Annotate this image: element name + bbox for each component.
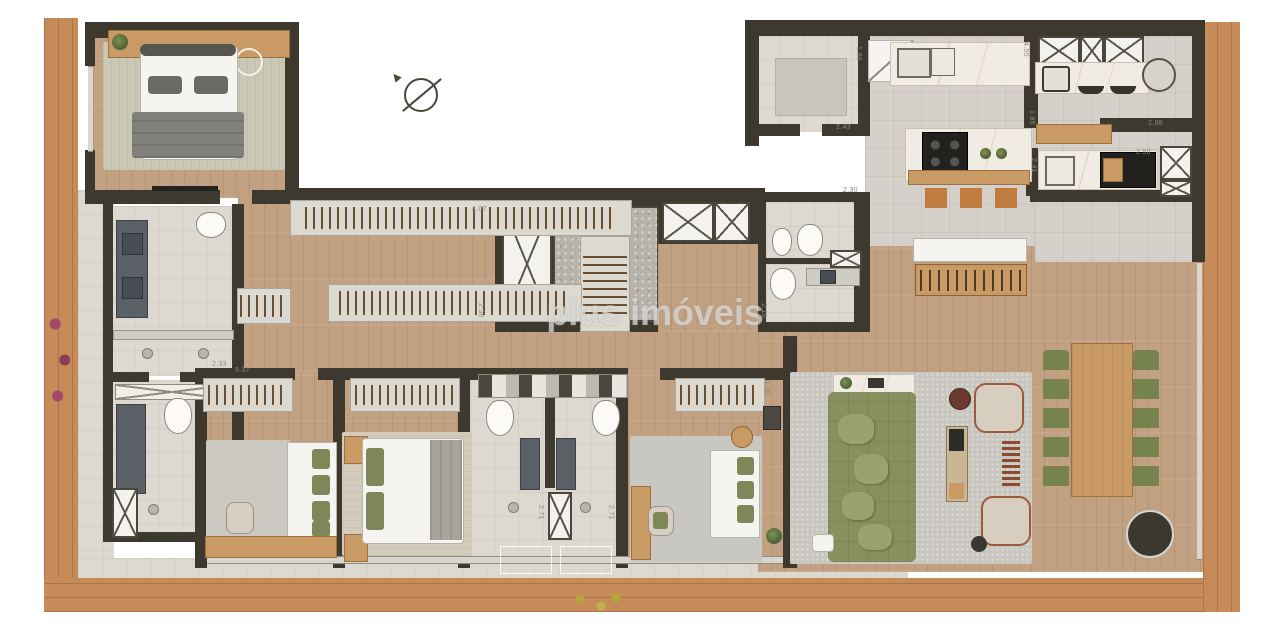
closet-rack-bottom — [328, 284, 582, 322]
plant-nightstand — [112, 34, 128, 50]
plant-bedroom4 — [766, 528, 782, 544]
vanity-master — [116, 220, 148, 318]
north-arrow-icon — [404, 78, 438, 112]
dimension-label: 2.43 — [836, 124, 851, 131]
toilet-master — [196, 212, 226, 238]
shower-glass-twin — [548, 492, 572, 540]
armchair — [981, 496, 1031, 546]
pillow — [194, 76, 228, 94]
dimension-label: 1.85 — [1028, 110, 1035, 125]
pantry-inner — [775, 58, 847, 116]
shower-head-icon — [148, 504, 159, 515]
dimension-label: 2.30 — [843, 187, 858, 194]
sofa-green — [828, 392, 916, 562]
wall — [616, 368, 628, 568]
service-bench — [1036, 124, 1112, 144]
vanity-bathA — [520, 438, 540, 490]
hedge-flowers-yellow — [565, 588, 625, 616]
hedge-bottom — [483, 582, 908, 628]
floor-plan: plus imóveis 4.072.362.339.372.302.101.8… — [0, 0, 1280, 640]
dining-chairs-left — [1043, 350, 1069, 492]
washer-underc — [1078, 86, 1104, 94]
wall — [1192, 20, 1205, 262]
elevator-icon — [714, 202, 750, 242]
shoe-rack — [237, 288, 291, 324]
bidet — [772, 228, 792, 256]
vanity-counter2 — [113, 330, 234, 340]
dimension-label: 2.71 — [537, 505, 544, 520]
round-coffee-table — [1126, 510, 1174, 558]
shower-head-icon — [198, 348, 209, 359]
shower-glass — [112, 488, 138, 538]
dimension-label: 2.10 — [760, 303, 767, 318]
tall-cabinet — [763, 406, 781, 430]
wall — [103, 204, 113, 386]
lavabo-sink — [820, 270, 836, 284]
vanity-bathB — [556, 438, 576, 490]
toilet-wc1 — [797, 224, 823, 256]
closet-rack-top — [290, 200, 632, 236]
headboard-cushion — [140, 44, 236, 56]
daybed-bedroom2 — [287, 442, 337, 544]
wall — [545, 396, 555, 488]
island-stools — [925, 188, 1027, 208]
bed-throw — [430, 440, 462, 540]
slatted-bench — [1002, 438, 1020, 486]
toilet-lavabo — [770, 268, 796, 300]
bar-cabinet — [946, 426, 968, 502]
window-master — [88, 66, 93, 152]
dimension-label: 4.30 — [763, 380, 770, 395]
kitchen-sink2 — [931, 48, 955, 76]
island-plant — [980, 148, 991, 159]
pillow-green — [366, 492, 384, 530]
cutting-board — [1103, 158, 1123, 182]
elevator-icon — [662, 202, 714, 242]
round-side-table — [731, 426, 753, 448]
daybed-bedroom4 — [710, 450, 760, 538]
desk-bedroom2 — [205, 536, 337, 558]
toilet-bathB — [592, 400, 620, 436]
watermark: plus imóveis — [546, 292, 763, 334]
dining-chairs-right — [1133, 350, 1159, 492]
shower-head-icon — [508, 502, 519, 513]
dimension-label: 2.41 — [1030, 158, 1037, 173]
bed-blanket — [132, 112, 244, 158]
toilet-bathA — [486, 400, 514, 436]
dimension-label: 2.33 — [212, 361, 227, 368]
toilet-wc — [164, 398, 192, 434]
service-shaft-icon — [1160, 180, 1192, 197]
dimension-label: 2.88 — [1148, 120, 1163, 127]
service-sink — [1045, 156, 1075, 186]
cabinet-wc — [116, 404, 146, 494]
island-wood-base — [908, 170, 1030, 185]
wall — [85, 22, 95, 66]
dimension-label: 2.36 — [477, 303, 484, 318]
bedroom2-closet-rack — [203, 378, 293, 412]
desk-chair-bedroom4 — [648, 506, 674, 536]
desk-chair-bedroom2 — [226, 502, 254, 534]
dimension-label: 1.88 — [855, 46, 862, 61]
wall — [85, 190, 220, 204]
dimension-label: 9.37 — [235, 367, 250, 374]
round-table-red — [949, 388, 971, 410]
deck-right — [1203, 22, 1240, 612]
ceiling-light-icon — [235, 48, 263, 76]
wine-rack — [915, 264, 1027, 296]
dimension-label: 4.07 — [472, 206, 487, 213]
balcony-table-outline — [500, 546, 552, 574]
shower-head-icon — [580, 502, 591, 513]
balcony-table-outline — [560, 546, 612, 574]
tv-panel — [152, 186, 218, 191]
dining-table — [1071, 343, 1133, 497]
dimension-label: 2.50 — [1136, 149, 1151, 156]
wall — [745, 124, 800, 136]
wall — [85, 150, 95, 204]
pillow — [148, 76, 182, 94]
side-table-dark — [971, 536, 987, 552]
console-plant — [840, 377, 852, 389]
wall — [745, 20, 1205, 36]
garden-flowers — [48, 300, 72, 420]
washer-underc — [1110, 86, 1136, 94]
laundry-sink — [1042, 66, 1070, 92]
shower-glass-wc1 — [830, 250, 862, 268]
window-living-right — [1197, 262, 1202, 560]
armchair — [974, 383, 1024, 433]
dimension-label: 2.71 — [607, 505, 614, 520]
side-table-white — [812, 534, 834, 552]
washing-machine — [1142, 58, 1176, 92]
kitchen-sink — [897, 48, 931, 78]
console-tray — [868, 378, 884, 388]
dimension-label: 4.50 — [1022, 42, 1029, 57]
bedroom3-closet-rack — [350, 378, 460, 412]
service-shaft-icon — [1160, 146, 1192, 180]
shower-head-icon — [142, 348, 153, 359]
bedroom4-closet-rack — [675, 378, 765, 412]
pillow-green — [366, 448, 384, 486]
island-plant — [996, 148, 1007, 159]
buffet-top — [913, 238, 1027, 262]
wardrobe-shelf — [478, 374, 628, 398]
cooktop — [922, 132, 968, 174]
